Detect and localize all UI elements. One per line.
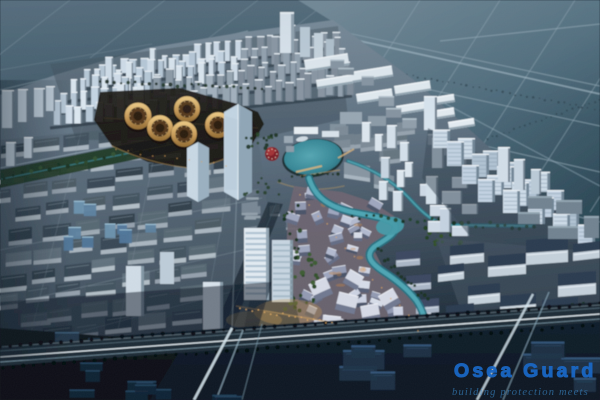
svg-text:building protection meets: building protection meets	[452, 387, 589, 398]
svg-text:Osea Guard: Osea Guard	[454, 360, 597, 382]
